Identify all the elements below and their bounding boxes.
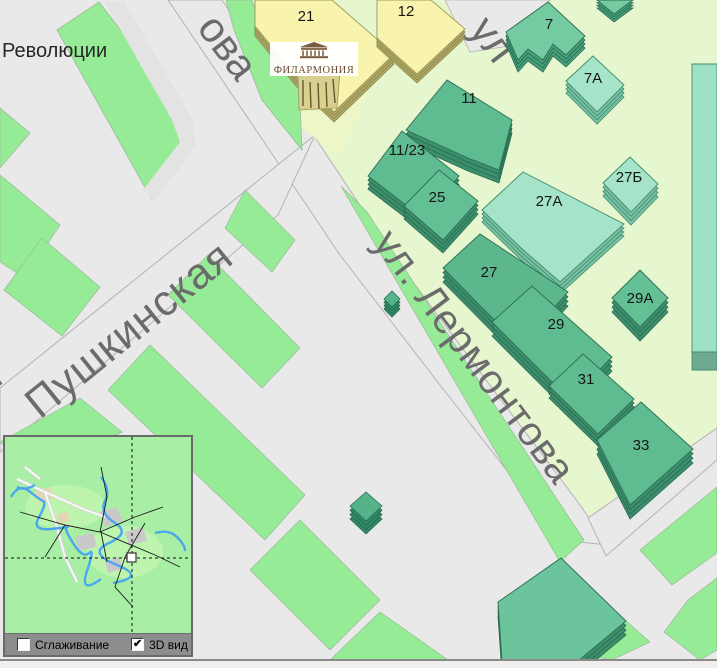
minimap-toolbar: Сглаживание ✔ 3D вид bbox=[5, 633, 191, 655]
window-bottom-edge bbox=[0, 659, 717, 668]
building-right-edge-base bbox=[692, 352, 717, 370]
square-label: Революции bbox=[2, 40, 107, 62]
building-number: 25 bbox=[429, 189, 446, 206]
building-number: 29 bbox=[548, 316, 565, 333]
building-number: 33 bbox=[633, 437, 650, 454]
building-number: 7 bbox=[545, 16, 553, 33]
philharmonic-building-icon bbox=[299, 42, 329, 59]
building-number: 31 bbox=[578, 371, 595, 388]
smoothing-toggle[interactable]: Сглаживание bbox=[17, 638, 109, 652]
minimap-position-marker bbox=[127, 553, 136, 562]
building-number: 27Б bbox=[616, 169, 643, 186]
building-number: 27А bbox=[536, 193, 563, 210]
minimap-map-area[interactable] bbox=[5, 437, 191, 634]
building-number: 12 bbox=[398, 3, 415, 20]
overview-minimap[interactable]: Сглаживание ✔ 3D вид bbox=[3, 435, 193, 657]
building-number: 7А bbox=[584, 70, 602, 87]
view-3d-checkbox[interactable]: ✔ bbox=[131, 638, 144, 651]
smoothing-label: Сглаживание bbox=[35, 638, 109, 652]
map-viewport[interactable]: Революции ова ул Пушкинская ул. Лермонто… bbox=[0, 0, 717, 668]
view-3d-label: 3D вид bbox=[149, 638, 188, 652]
poi-philharmonic[interactable]: ФИЛАРМОНИЯ bbox=[270, 42, 358, 76]
building-number: 27 bbox=[481, 264, 498, 281]
building-number: 11/23 bbox=[389, 142, 425, 159]
minimap-canvas bbox=[5, 437, 191, 634]
view-3d-toggle[interactable]: ✔ 3D вид bbox=[131, 638, 188, 652]
building-right-edge bbox=[692, 64, 717, 352]
building-number: 21 bbox=[298, 8, 315, 25]
building-number: 29А bbox=[627, 290, 654, 307]
poi-philharmonic-label: ФИЛАРМОНИЯ bbox=[270, 65, 358, 76]
building-number: 11 bbox=[461, 90, 477, 107]
smoothing-checkbox[interactable] bbox=[17, 638, 30, 651]
